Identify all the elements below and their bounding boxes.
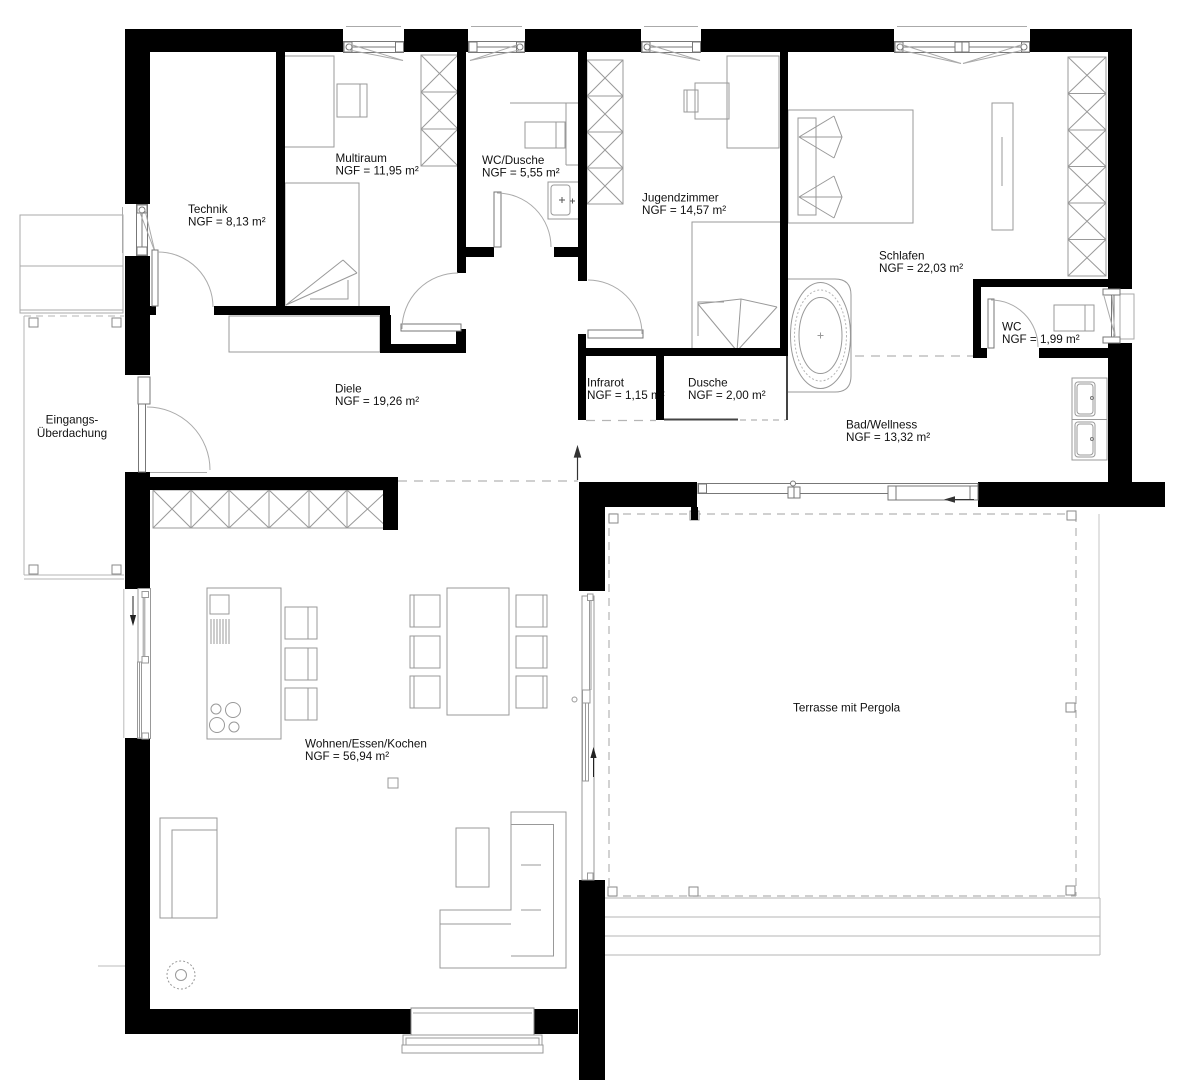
svg-text:Wohnen/Essen/Kochen: Wohnen/Essen/Kochen (305, 738, 427, 751)
svg-text:NGF = 22,03 m²: NGF = 22,03 m² (879, 262, 963, 275)
svg-text:NGF = 19,26 m²: NGF = 19,26 m² (335, 395, 419, 408)
svg-text:Infrarot: Infrarot (587, 377, 625, 390)
svg-text:WC: WC (1002, 321, 1021, 334)
svg-text:Eingangs-: Eingangs- (46, 414, 99, 427)
svg-text:Jugendzimmer: Jugendzimmer (642, 192, 719, 205)
svg-text:NGF = 11,95 m²: NGF = 11,95 m² (336, 165, 419, 178)
svg-text:Diele: Diele (335, 383, 362, 396)
svg-text:Dusche: Dusche (688, 377, 728, 390)
svg-text:Schlafen: Schlafen (879, 250, 924, 263)
svg-text:NGF = 8,13 m²: NGF = 8,13 m² (188, 216, 266, 229)
svg-text:NGF = 1,15 m²: NGF = 1,15 m² (587, 389, 665, 402)
svg-text:WC/Dusche: WC/Dusche (482, 154, 544, 167)
svg-text:Technik: Technik (188, 203, 228, 216)
svg-text:Überdachung: Überdachung (37, 427, 107, 440)
svg-text:NGF = 13,32 m²: NGF = 13,32 m² (846, 431, 930, 444)
svg-text:NGF = 2,00 m²: NGF = 2,00 m² (688, 389, 766, 402)
svg-text:NGF = 56,94 m²: NGF = 56,94 m² (305, 750, 389, 763)
svg-text:Terrasse mit Pergola: Terrasse mit Pergola (793, 702, 901, 715)
svg-text:NGF = 5,55 m²: NGF = 5,55 m² (482, 167, 560, 180)
svg-text:Multiraum: Multiraum (336, 152, 387, 165)
svg-text:NGF = 1,99 m²: NGF = 1,99 m² (1002, 333, 1080, 346)
svg-text:Bad/Wellness: Bad/Wellness (846, 419, 917, 432)
svg-text:NGF = 14,57 m²: NGF = 14,57 m² (642, 204, 726, 217)
